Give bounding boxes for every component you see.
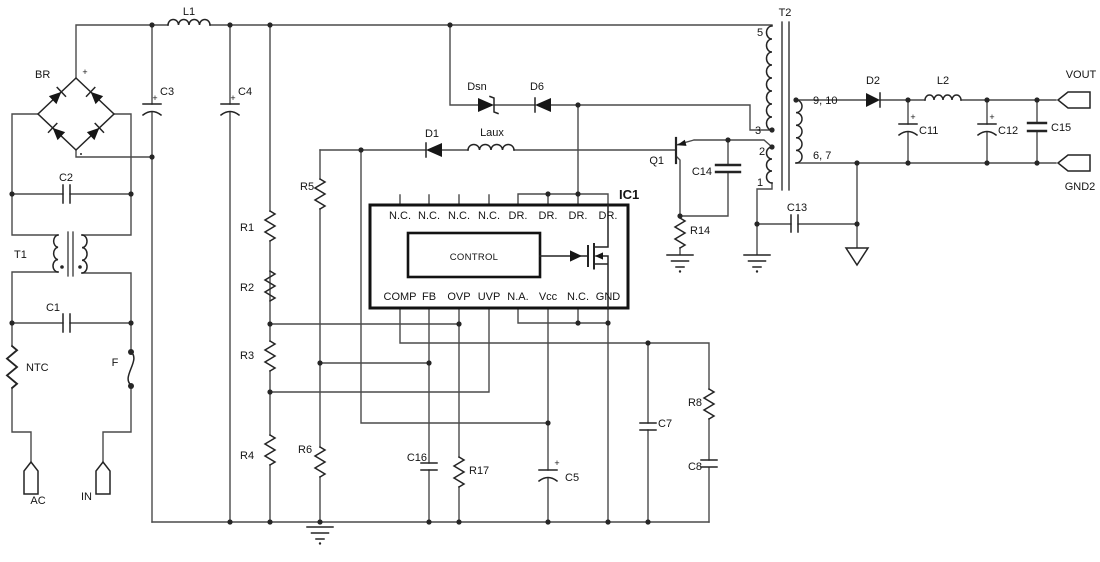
capacitor-C16 — [421, 463, 437, 470]
ic1-top-pin-8: DR. — [599, 210, 618, 222]
wire-gnd-pins — [518, 308, 608, 522]
resistor-R3 — [265, 341, 275, 371]
label-control: CONTROL — [450, 252, 499, 263]
label-c14: C14 — [692, 166, 712, 178]
label-c5-plus: + — [554, 458, 559, 468]
label-l1: L1 — [183, 6, 195, 18]
label-r5: R5 — [300, 181, 314, 193]
wire-uvp — [270, 308, 489, 392]
transformer-T2 — [767, 22, 802, 190]
label-ac: AC — [30, 495, 45, 507]
label-dsn: Dsn — [467, 81, 487, 93]
transformer-T1 — [53, 232, 87, 276]
resistor-R4 — [265, 435, 275, 465]
label-t1: T1 — [14, 249, 27, 261]
label-vout: VOUT — [1066, 69, 1097, 81]
label-c16: C16 — [407, 452, 427, 464]
label-ntc: NTC — [26, 362, 49, 374]
ic1-top-pin-4: N.C. — [478, 210, 500, 222]
label-br-plus: + — [82, 67, 87, 77]
label-c1: C1 — [46, 302, 60, 314]
earth-ground-icon — [744, 255, 770, 273]
diode-D1 — [426, 143, 442, 157]
label-r3: R3 — [240, 350, 254, 362]
resistor-R14 — [675, 218, 685, 248]
ic1-top-pin-5: DR. — [509, 210, 528, 222]
label-c11: C11 — [919, 125, 938, 137]
resistor-R17 — [454, 457, 464, 487]
label-c4-plus: + — [230, 93, 235, 103]
ic1-bottom-pin-ovp: OVP — [447, 291, 470, 303]
label-c13: C13 — [787, 202, 807, 214]
resistor-R5 — [315, 179, 325, 209]
label-c15: C15 — [1051, 122, 1071, 134]
inductor-L1 — [168, 20, 210, 26]
ic1-bottom-pin-fb: FB — [422, 291, 436, 303]
diode-D2 — [866, 93, 880, 107]
wire-fb — [320, 308, 429, 522]
terminal-gnd2 — [1058, 155, 1090, 171]
ic1-top-pin-1: N.C. — [389, 210, 411, 222]
label-c3: C3 — [160, 86, 174, 98]
label-l2: L2 — [937, 75, 949, 87]
label-t2-pin5: 5 — [757, 27, 763, 39]
label-c3-plus: + — [152, 93, 157, 103]
label-t2-pin910: 9, 10 — [813, 95, 837, 107]
label-t2-pin1: 1 — [757, 177, 763, 189]
ic1-bottom-pin-vcc: Vcc — [539, 291, 558, 303]
capacitor-C15 — [1028, 123, 1046, 131]
label-t2-pin67: 6, 7 — [813, 150, 831, 162]
ic1-bottom-pin-na: N.A. — [507, 291, 528, 303]
ic1-bottom-pin-nc: N.C. — [567, 291, 589, 303]
wire-ac-input — [12, 114, 131, 462]
earth-ground-icon — [307, 527, 333, 545]
label-c2: C2 — [59, 172, 73, 184]
label-r8: R8 — [688, 397, 702, 409]
label-q1: Q1 — [649, 155, 664, 167]
label-c8: C8 — [688, 461, 702, 473]
ic1-top-pin-3: N.C. — [448, 210, 470, 222]
terminal-in — [96, 462, 110, 494]
bridge-rectifier — [38, 78, 114, 155]
wire-ovp — [270, 308, 459, 522]
capacitor-C14 — [716, 165, 740, 172]
label-gnd2: GND2 — [1065, 181, 1096, 193]
inductor-Laux — [468, 145, 514, 151]
capacitor-C7 — [640, 423, 656, 430]
label-r2: R2 — [240, 282, 254, 294]
diode-D6 — [535, 98, 551, 112]
ic1-top-pin-7: DR. — [569, 210, 588, 222]
capacitor-C2 — [63, 185, 70, 203]
label-d2: D2 — [866, 75, 880, 87]
ic1-top-pin-2: N.C. — [418, 210, 440, 222]
label-r14: R14 — [690, 225, 710, 237]
ic1-bottom-pin-uvp: UVP — [478, 291, 501, 303]
fuse-F — [128, 349, 134, 389]
ic1-bottom-pin-gnd: GND — [596, 291, 621, 303]
label-t2-pin2: 2 — [759, 146, 765, 158]
label-c7: C7 — [658, 418, 672, 430]
label-t2-pin3: 3 — [755, 125, 761, 137]
resistor-NTC — [7, 346, 17, 388]
label-in: IN — [81, 491, 92, 503]
label-r6: R6 — [298, 444, 312, 456]
ic1-top-pin-6: DR. — [539, 210, 558, 222]
label-t2: T2 — [779, 7, 792, 19]
terminal-ac — [24, 462, 38, 494]
ic1-bottom-pin-comp: COMP — [384, 291, 417, 303]
label-r4: R4 — [240, 450, 254, 462]
chassis-ground-icon — [846, 248, 868, 265]
label-c12-plus: + — [989, 112, 994, 122]
label-r17: R17 — [469, 465, 489, 477]
inductor-L2 — [925, 95, 961, 100]
label-f: F — [112, 357, 119, 369]
label-d1: D1 — [425, 128, 439, 140]
resistor-R1 — [265, 211, 275, 241]
earth-ground-icon — [667, 255, 693, 273]
wire-dr-bus — [400, 105, 608, 205]
transistor-Q1 — [676, 138, 687, 163]
label-br: BR — [35, 69, 50, 81]
capacitor-C1 — [63, 314, 70, 332]
resistor-R8 — [704, 389, 714, 419]
power-supply-schematic: BR + L1 C3 + C4 + C2 T1 C1 NTC F AC IN R… — [0, 0, 1100, 562]
label-ic1: IC1 — [619, 187, 639, 202]
label-c5: C5 — [565, 472, 579, 484]
label-d6: D6 — [530, 81, 544, 93]
schematic-canvas: BR + L1 C3 + C4 + C2 T1 C1 NTC F AC IN R… — [0, 0, 1100, 562]
capacitor-C8 — [701, 460, 717, 467]
label-c11-plus: + — [910, 112, 915, 122]
label-laux: Laux — [480, 127, 504, 139]
resistor-R6 — [315, 447, 325, 477]
label-r1: R1 — [240, 222, 254, 234]
label-c4: C4 — [238, 86, 252, 98]
capacitor-C13 — [791, 215, 798, 232]
label-c12: C12 — [998, 125, 1018, 137]
wire-comp — [400, 308, 709, 522]
terminal-vout — [1058, 92, 1090, 108]
